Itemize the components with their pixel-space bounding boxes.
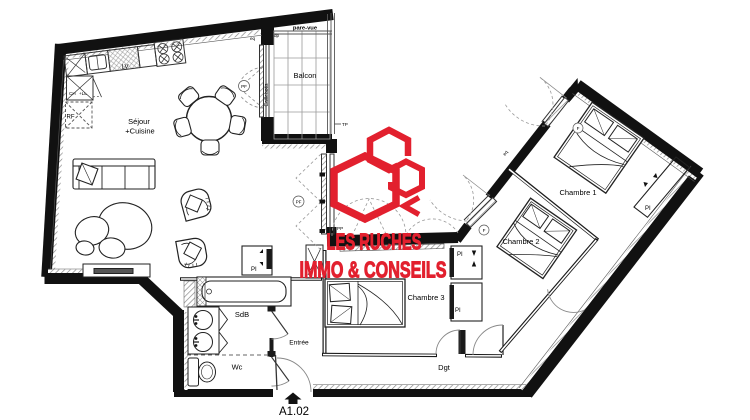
svg-text:Chambre 1: Chambre 1	[559, 188, 596, 197]
svg-text:eq: eq	[250, 36, 256, 41]
svg-text:LV: LV	[122, 65, 129, 71]
svg-text:PF: PF	[296, 200, 302, 205]
svg-text:PI: PI	[645, 206, 651, 212]
svg-text:Entrée: Entrée	[289, 340, 309, 347]
svg-text:RF: RF	[67, 115, 75, 121]
svg-text:+Cuisine: +Cuisine	[125, 127, 154, 136]
svg-text:PF: PF	[241, 84, 247, 89]
svg-text:PI: PI	[455, 308, 461, 314]
svg-text:PI: PI	[251, 267, 257, 273]
svg-text:PI: PI	[457, 252, 463, 258]
svg-text:PP: PP	[337, 226, 343, 231]
svg-text:IMMO & CONSEILS: IMMO & CONSEILS	[300, 257, 447, 283]
svg-text:Balcon: Balcon	[294, 71, 317, 80]
svg-text:pare-vue: pare-vue	[293, 26, 318, 32]
svg-text:TP: TP	[342, 122, 348, 127]
svg-text:Chambre 2: Chambre 2	[502, 237, 539, 246]
svg-text:LES RUCHES: LES RUCHES	[327, 229, 422, 255]
svg-text:F: F	[577, 126, 580, 131]
svg-text:SdB: SdB	[235, 310, 249, 319]
svg-text:Séjour: Séjour	[128, 117, 150, 126]
svg-text:F: F	[483, 228, 486, 233]
svg-text:dp: dp	[274, 33, 280, 38]
svg-text:+LL: +LL	[79, 91, 87, 96]
svg-text:CH: CH	[69, 91, 76, 96]
svg-text:A1.02: A1.02	[279, 406, 309, 418]
svg-text:Dgt: Dgt	[438, 363, 451, 372]
svg-text:Wc: Wc	[232, 363, 243, 372]
svg-text:Chambre 3: Chambre 3	[407, 293, 444, 302]
svg-text:Caillebotis: Caillebotis	[264, 83, 270, 107]
